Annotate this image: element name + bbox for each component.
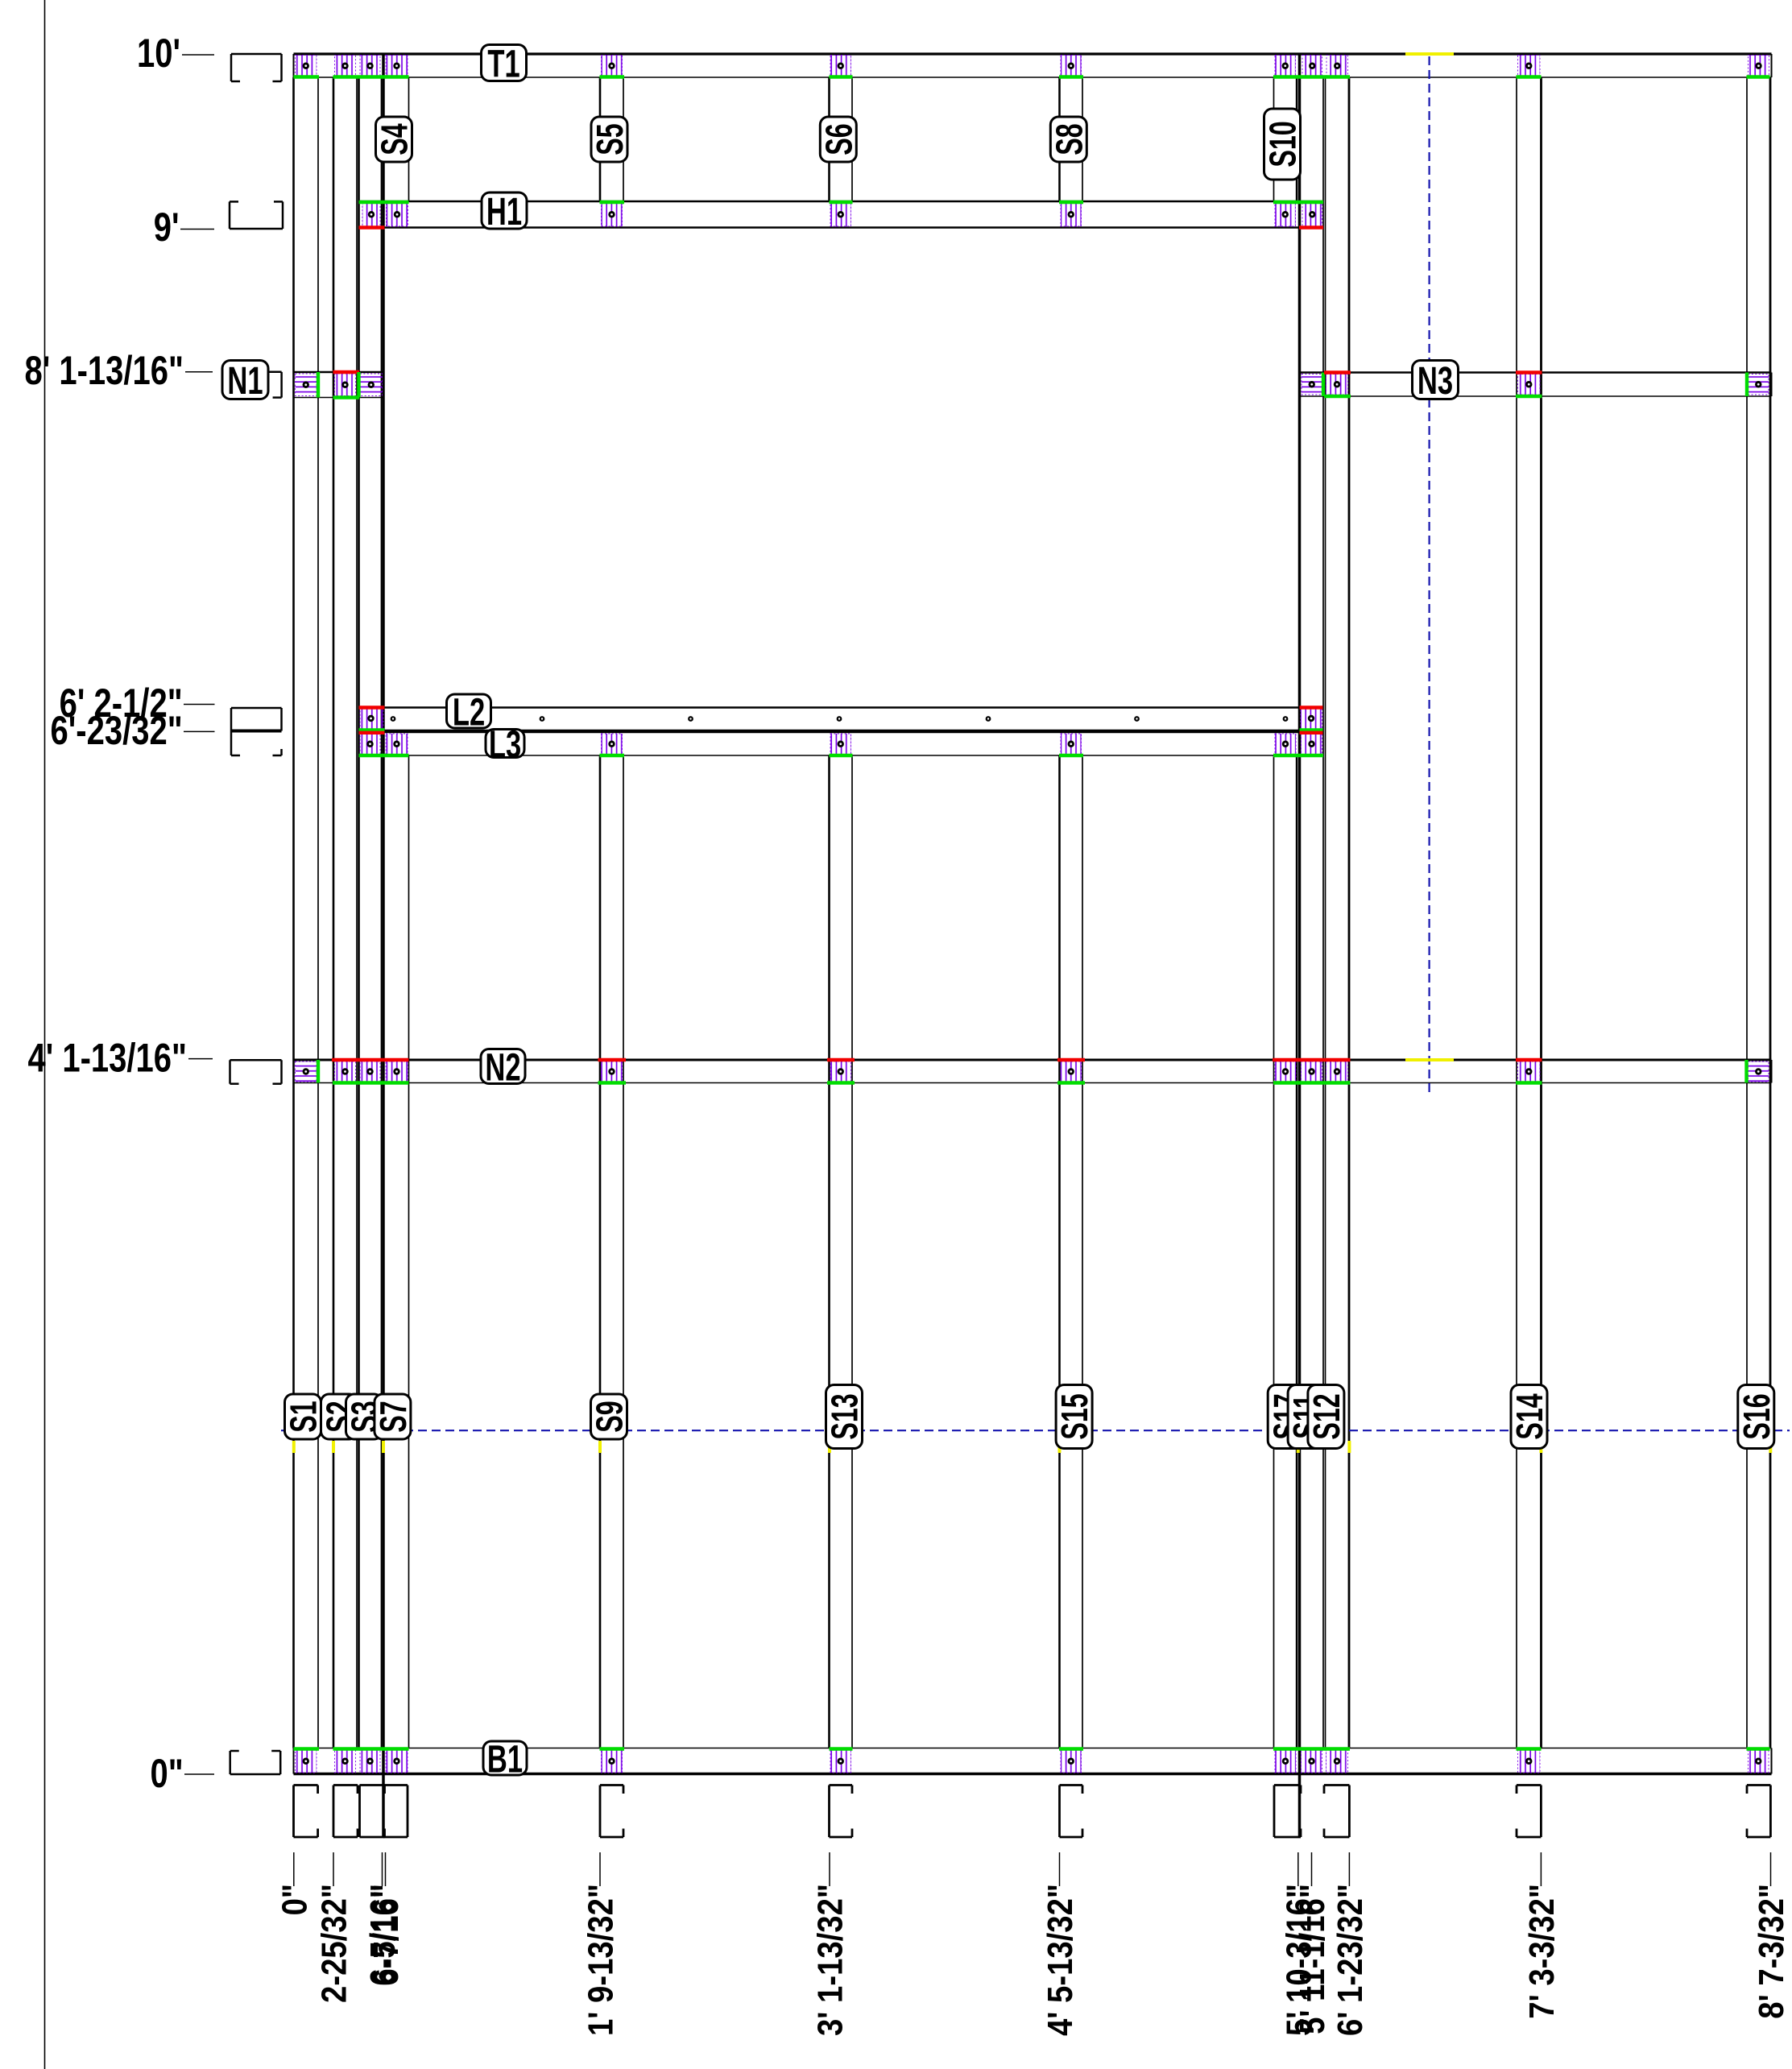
svg-text:S16: S16 xyxy=(1736,1393,1778,1439)
svg-text:6-7/16": 6-7/16" xyxy=(366,1884,406,1986)
svg-text:S14: S14 xyxy=(1509,1393,1550,1440)
svg-text:H1: H1 xyxy=(486,191,522,234)
svg-text:T1: T1 xyxy=(487,43,519,85)
svg-text:10': 10' xyxy=(137,31,180,76)
svg-text:N3: N3 xyxy=(1417,360,1453,403)
svg-text:S5: S5 xyxy=(589,123,631,155)
svg-text:3' 1-13/32": 3' 1-13/32" xyxy=(811,1884,850,2036)
svg-text:S4: S4 xyxy=(374,123,416,155)
svg-text:S12: S12 xyxy=(1306,1393,1347,1439)
svg-text:S13: S13 xyxy=(824,1393,866,1439)
svg-text:S9: S9 xyxy=(589,1401,631,1432)
svg-text:7' 3-3/32": 7' 3-3/32" xyxy=(1522,1884,1562,2019)
svg-text:N1: N1 xyxy=(227,360,263,403)
svg-text:0": 0" xyxy=(275,1884,314,1915)
svg-text:L3: L3 xyxy=(489,723,521,766)
svg-text:6' 1-23/32": 6' 1-23/32" xyxy=(1331,1884,1370,2036)
svg-text:N2: N2 xyxy=(485,1046,520,1089)
svg-text:S6: S6 xyxy=(817,123,859,155)
svg-text:8' 7-3/32": 8' 7-3/32" xyxy=(1752,1884,1791,2019)
svg-text:2-25/32": 2-25/32" xyxy=(315,1884,354,2003)
svg-text:S10: S10 xyxy=(1262,121,1304,167)
svg-text:6'-23/32": 6'-23/32" xyxy=(51,708,183,753)
svg-text:8' 1-13/16": 8' 1-13/16" xyxy=(24,348,184,393)
svg-text:5' 11-1/16": 5' 11-1/16" xyxy=(1293,1884,1332,2034)
svg-text:S7: S7 xyxy=(372,1401,414,1432)
svg-text:4' 1-13/16": 4' 1-13/16" xyxy=(27,1036,187,1081)
svg-text:L2: L2 xyxy=(453,691,485,734)
svg-text:0": 0" xyxy=(150,1751,183,1796)
svg-text:S15: S15 xyxy=(1053,1393,1095,1439)
svg-text:S8: S8 xyxy=(1048,123,1090,155)
svg-text:4' 5-13/32": 4' 5-13/32" xyxy=(1041,1884,1080,2036)
svg-text:9': 9' xyxy=(154,205,180,250)
svg-text:1' 9-13/32": 1' 9-13/32" xyxy=(581,1884,621,2036)
svg-text:B1: B1 xyxy=(487,1738,523,1781)
